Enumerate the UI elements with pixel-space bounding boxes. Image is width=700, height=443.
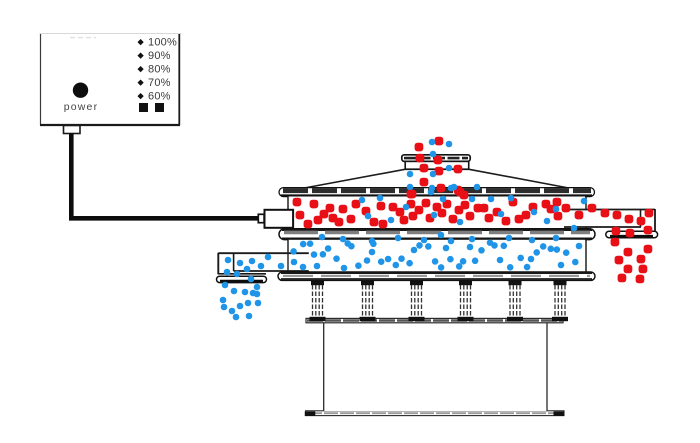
svg-text:70%: 70%	[148, 77, 171, 89]
svg-text:100%: 100%	[148, 37, 177, 49]
svg-text:power: power	[64, 101, 99, 113]
svg-text:80%: 80%	[148, 64, 171, 76]
svg-text:60%: 60%	[148, 91, 171, 103]
svg-text:90%: 90%	[148, 50, 171, 62]
